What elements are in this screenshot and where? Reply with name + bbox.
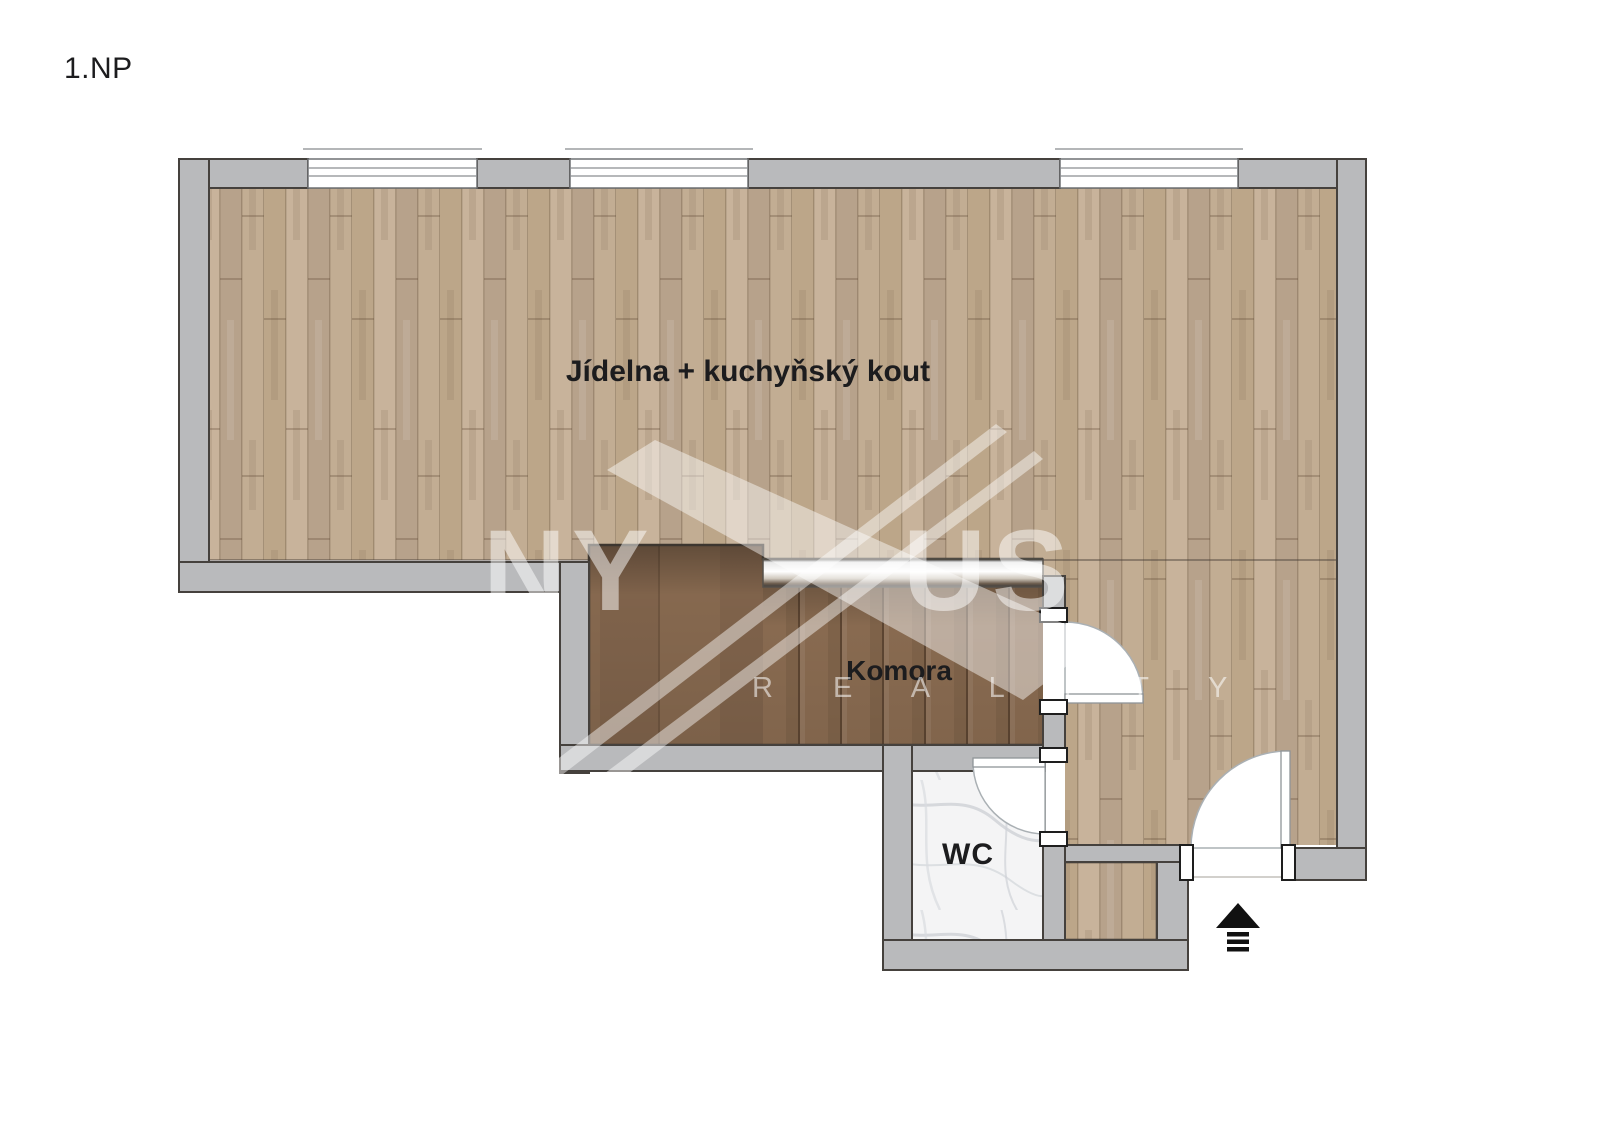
wall-int-seg3: [1043, 846, 1065, 940]
entrance-arrow-icon: [1216, 903, 1260, 952]
wall-corridor-bottom: [1045, 845, 1188, 862]
wall-wc-left: [883, 745, 912, 970]
komora-door-leaf: [1065, 694, 1143, 703]
window-1: [303, 149, 482, 188]
wall-right: [1337, 159, 1366, 880]
wall-entry-right: [1287, 848, 1366, 880]
entrance-door-leaf: [1281, 751, 1290, 848]
window-3: [1055, 149, 1243, 188]
wall-int-seg1: [1043, 576, 1065, 608]
wall-wc-bottom: [883, 940, 1188, 970]
wall-bottom-left: [179, 562, 589, 592]
wall-left: [179, 159, 209, 592]
wall-int-seg2: [1043, 714, 1065, 748]
room-label-dining-kitchen: Jídelna + kuchyňský kout: [566, 355, 930, 389]
wall-top-mid: [748, 159, 1060, 188]
floorplan-drawing: [0, 0, 1599, 1130]
window-2: [565, 149, 753, 188]
room-label-wc: WC: [942, 838, 994, 872]
storage-shaft: [1063, 862, 1157, 940]
wc-door-leaf: [973, 758, 1045, 767]
room-label-komora: Komora: [846, 655, 952, 687]
wall-top-pillar: [477, 159, 570, 188]
floor-title: 1.NP: [64, 52, 133, 86]
floorplan-canvas: 1.NP Jídelna + kuchyňský kout Komora WC …: [0, 0, 1599, 1130]
